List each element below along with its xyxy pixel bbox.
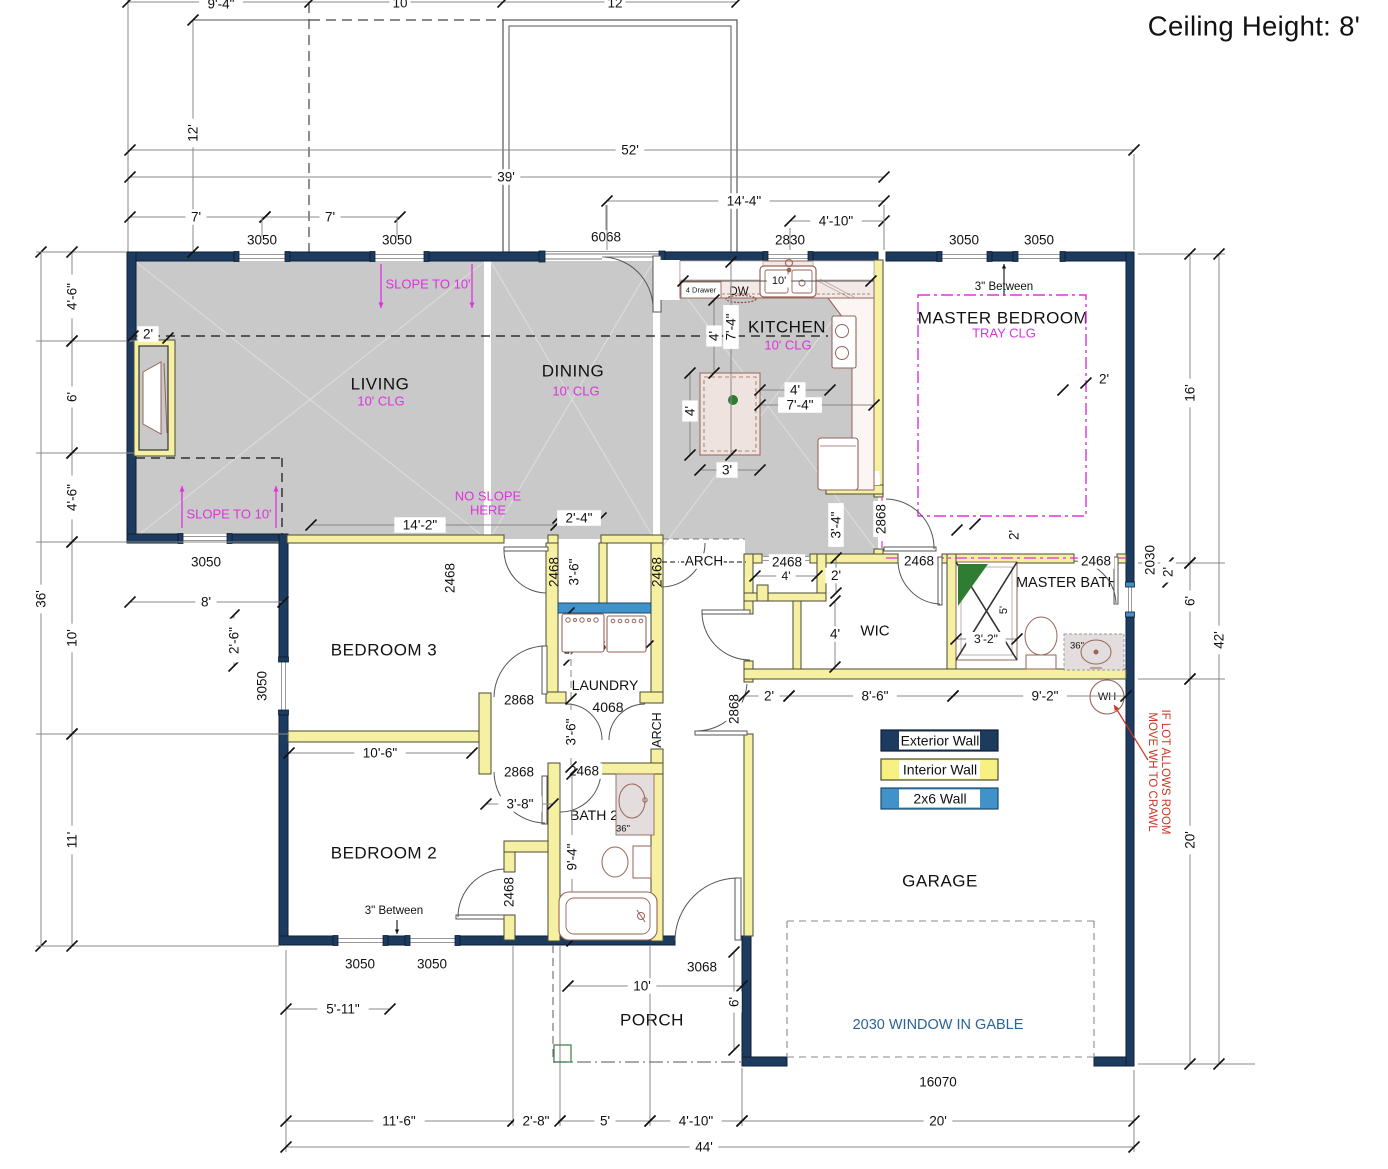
svg-text:44': 44' [695,1140,713,1155]
svg-text:42': 42' [1212,631,1227,649]
svg-text:9'-2": 9'-2" [1032,689,1059,704]
svg-text:7': 7' [325,210,335,225]
svg-text:4 Drawer: 4 Drawer [686,286,717,295]
svg-text:8': 8' [201,595,211,610]
svg-text:2868: 2868 [727,694,742,724]
svg-text:4'-10": 4'-10" [819,214,854,229]
svg-text:2': 2' [764,689,774,704]
svg-text:NO SLOPE: NO SLOPE [455,489,522,504]
svg-text:3050: 3050 [949,233,979,248]
svg-text:10' CLG: 10' CLG [552,384,599,399]
svg-text:7': 7' [191,210,201,225]
svg-text:2468: 2468 [1081,554,1111,569]
svg-text:2030 WINDOW IN GABLE: 2030 WINDOW IN GABLE [853,1017,1024,1033]
svg-text:5': 5' [998,606,1010,614]
svg-text:2'-4": 2'-4" [566,511,593,526]
svg-text:WIC: WIC [860,623,889,640]
svg-text:7'-4": 7'-4" [787,398,814,413]
svg-text:KITCHEN: KITCHEN [748,318,826,337]
svg-text:4068: 4068 [592,699,623,715]
svg-text:4'-10": 4'-10" [679,1114,714,1129]
svg-text:3'-8": 3'-8" [507,797,534,812]
svg-text:3050: 3050 [345,957,375,972]
svg-text:BEDROOM 2: BEDROOM 2 [331,844,438,863]
svg-text:3050: 3050 [1024,233,1054,248]
svg-text:10' CLG: 10' CLG [357,394,404,409]
svg-text:6': 6' [727,997,742,1007]
svg-text:2': 2' [143,327,153,342]
svg-text:16070: 16070 [919,1075,957,1090]
svg-text:20': 20' [929,1114,947,1129]
svg-text:SLOPE TO 10': SLOPE TO 10' [186,507,271,522]
svg-text:6': 6' [65,392,80,402]
svg-text:2x6 Wall: 2x6 Wall [913,791,966,807]
svg-text:39': 39' [497,170,515,185]
svg-text:SLOPE TO 10': SLOPE TO 10' [385,277,470,292]
svg-text:10': 10' [65,629,80,647]
svg-text:12': 12' [186,124,201,142]
svg-text:4': 4' [707,331,722,341]
svg-text:10': 10' [633,979,651,994]
svg-text:2468: 2468 [650,557,665,587]
svg-text:14'-4": 14'-4" [727,194,762,209]
svg-text:Exterior Wall: Exterior Wall [901,733,980,749]
svg-text:Interior Wall: Interior Wall [903,762,977,778]
svg-text:2030: 2030 [1143,545,1158,575]
svg-text:2': 2' [1007,530,1022,540]
svg-text:6': 6' [1183,596,1198,606]
svg-text:3'-4": 3'-4" [829,511,844,538]
svg-text:6068: 6068 [591,230,621,245]
svg-text:16': 16' [1183,384,1198,402]
svg-text:4': 4' [830,627,840,642]
svg-text:2868: 2868 [504,693,534,708]
svg-text:5'-11": 5'-11" [326,1002,360,1017]
svg-text:Ceiling Height: 8': Ceiling Height: 8' [1148,11,1360,42]
svg-text:4'-6": 4'-6" [65,484,80,511]
svg-text:3" Between: 3" Between [365,905,423,917]
svg-text:14'-2": 14'-2" [403,518,438,533]
svg-text:3050: 3050 [417,957,447,972]
svg-text:BATH 2: BATH 2 [570,807,618,823]
svg-text:2468: 2468 [569,764,599,779]
svg-text:3'-2": 3'-2" [974,632,998,646]
svg-text:36": 36" [1070,641,1084,652]
svg-text:TRAY CLG: TRAY CLG [972,326,1036,341]
svg-text:2468: 2468 [443,563,458,593]
svg-text:HERE: HERE [470,503,506,518]
svg-text:8'-6": 8'-6" [862,689,889,704]
svg-text:5': 5' [600,1114,610,1129]
svg-text:ARCH: ARCH [650,712,664,747]
svg-text:2'-6": 2'-6" [227,627,242,654]
svg-text:2': 2' [831,568,841,583]
svg-text:2868: 2868 [504,765,534,780]
svg-text:BEDROOM 3: BEDROOM 3 [331,641,438,660]
svg-text:10'-6": 10'-6" [363,746,398,761]
svg-text:10': 10' [772,275,786,287]
svg-text:9'-4": 9'-4" [208,0,235,12]
svg-text:IF LOT ALLOWS ROOM: IF LOT ALLOWS ROOM [1159,709,1171,834]
svg-text:3050: 3050 [255,671,270,701]
svg-text:LAUNDRY: LAUNDRY [572,677,639,693]
svg-text:2468: 2468 [547,557,562,587]
svg-text:2': 2' [1161,567,1176,577]
svg-text:36": 36" [616,824,630,835]
svg-text:3068: 3068 [687,960,717,975]
svg-text:2'-8": 2'-8" [523,1114,550,1129]
svg-text:10' CLG: 10' CLG [764,338,811,353]
svg-text:2': 2' [1099,372,1109,387]
svg-text:2468: 2468 [904,554,934,569]
svg-text:11': 11' [65,832,80,849]
svg-text:36': 36' [34,590,49,608]
svg-text:4': 4' [683,406,698,416]
svg-text:12: 12 [607,0,622,11]
svg-text:4'-6": 4'-6" [65,283,80,310]
svg-text:7'-4": 7'-4" [724,313,739,340]
svg-text:9'-4": 9'-4" [565,843,580,870]
svg-text:2868: 2868 [874,504,889,534]
svg-text:11'-6": 11'-6" [382,1114,416,1129]
svg-text:3'-6": 3'-6" [567,558,582,585]
svg-text:PORCH: PORCH [620,1011,684,1030]
svg-text:52': 52' [621,143,639,158]
svg-text:3050: 3050 [191,555,221,570]
svg-text:2468: 2468 [502,877,517,907]
svg-text:4': 4' [790,383,800,398]
svg-text:4': 4' [782,569,791,583]
svg-text:MASTER BATH: MASTER BATH [1016,575,1118,591]
svg-text:20': 20' [1183,831,1198,849]
svg-text:3'-6": 3'-6" [564,718,579,745]
svg-text:GARAGE: GARAGE [902,872,978,891]
svg-text:WH: WH [1098,691,1116,703]
svg-text:DINING: DINING [542,362,605,381]
svg-text:10: 10 [392,0,407,11]
svg-text:LIVING: LIVING [351,375,410,394]
svg-text:2468: 2468 [772,555,802,570]
svg-text:-ARCH-: -ARCH- [680,554,727,569]
svg-text:MOVE WH TO CRAWL: MOVE WH TO CRAWL [1146,712,1158,832]
svg-text:3': 3' [722,463,732,478]
